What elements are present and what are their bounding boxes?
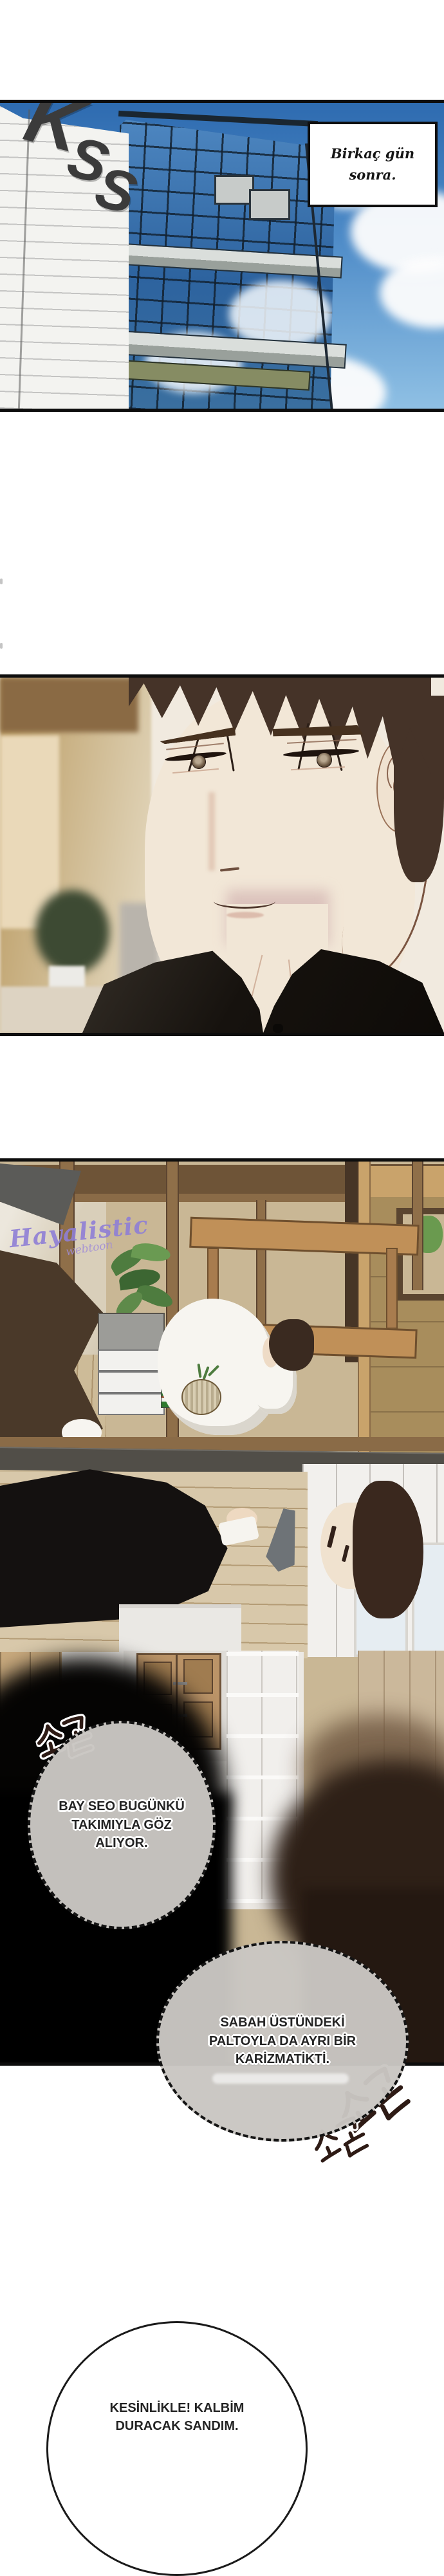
caption-line: Birkaç gün	[331, 144, 414, 165]
caption-text: Birkaç gün sonra.	[331, 144, 414, 185]
speech-bubble-3: KESİNLİKLE! KALBİM DURACAK SANDIM.	[46, 2321, 308, 2576]
nose-shadow	[208, 792, 215, 871]
cabinet-drawer	[98, 1371, 165, 1393]
speech-bubble-whisper-2: SABAH ÜSTÜNDEKİ PALTOYLA DA AYRI BİR KAR…	[156, 1941, 409, 2142]
bubble-text: SABAH ÜSTÜNDEKİ PALTOYLA DA AYRI BİR KAR…	[209, 2014, 356, 2068]
bubble-line: SABAH ÜSTÜNDEKİ	[209, 2014, 356, 2032]
bubble-line: KESİNLİKLE! KALBİM	[110, 2399, 245, 2417]
scan-speck	[0, 643, 3, 649]
table-leg	[386, 1248, 398, 1329]
lower-lip-shadow	[227, 912, 264, 918]
scan-speck	[0, 579, 3, 584]
erased-text-smudge	[212, 2073, 349, 2084]
wood-shelf	[359, 1164, 444, 1199]
striped-shade	[181, 1379, 221, 1415]
cabinet-top	[98, 1313, 165, 1351]
narration-caption-box: Birkaç gün sonra.	[308, 122, 438, 207]
bubble-line: BAY SEO BUGÜNKÜ	[59, 1797, 185, 1815]
rooftop-unit	[214, 175, 254, 205]
cabinet-drawer	[98, 1349, 165, 1371]
blurred-plant	[35, 890, 109, 974]
bubble-line: KARİZMATİKTİ.	[209, 2050, 356, 2068]
bubble-text: KESİNLİKLE! KALBİM DURACAK SANDIM.	[110, 2399, 245, 2436]
bubble-line: DURACAK SANDIM.	[110, 2417, 245, 2435]
caption-line: sonra.	[331, 165, 414, 186]
mr-seo-hair	[353, 1481, 423, 1618]
glass-door-frame	[119, 1604, 241, 1656]
coworker-hair	[269, 1319, 314, 1371]
speech-bubble-whisper-1: BAY SEO BUGÜNKÜ TAKIMIYLA GÖZ ALIYOR.	[28, 1721, 216, 1929]
bubble-line: TAKIMIYLA GÖZ	[59, 1816, 185, 1834]
collar-button	[273, 1024, 283, 1033]
blurred-beam	[0, 678, 138, 732]
panel-building-exterior: KSS Birkaç gün sonra.	[0, 100, 444, 412]
rooftop-unit	[249, 189, 290, 220]
bubble-line: ALIYOR.	[59, 1834, 185, 1852]
panel-face-closeup	[0, 674, 444, 1036]
right-iris	[317, 752, 332, 768]
mouth	[214, 894, 275, 909]
panel-office-whisper	[0, 1158, 444, 2066]
door-panel	[183, 1659, 213, 1694]
left-iris	[192, 755, 206, 769]
bubble-line: PALTOYLA DA AYRI BİR	[209, 2032, 356, 2050]
cabinet-drawer	[98, 1393, 165, 1415]
comic-page: { "page": {"width": 690, "height": 3772,…	[0, 0, 444, 2427]
bubble-text: BAY SEO BUGÜNKÜ TAKIMIYLA GÖZ ALIYOR.	[59, 1797, 185, 1852]
